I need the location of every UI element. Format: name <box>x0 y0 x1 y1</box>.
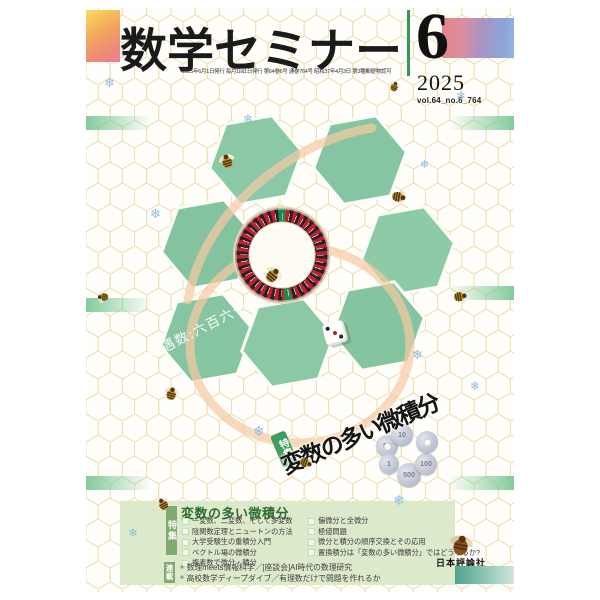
masthead-gradient-right <box>442 18 514 58</box>
bullet-square-icon <box>308 528 315 535</box>
contents-item-label: 極値問題 <box>318 527 347 537</box>
bullet-square-icon: ■ <box>180 575 184 581</box>
serial-item: ■高校数学ディープダイブ／有理数だけで問題を作れるか <box>180 573 381 584</box>
coin-1-icon: 1 <box>379 454 399 474</box>
bullet-square-icon <box>182 539 189 546</box>
contents-item: 極値問題 <box>308 527 347 537</box>
snowflake-icon: ❄ <box>104 76 115 89</box>
coin-100-icon: 100 <box>415 453 437 475</box>
contents-item: 陰関数定理とニュートンの方法 <box>182 527 293 537</box>
magazine-cover: 奇遇数:六百六十六 数学セミナー 2025年6月1日発行 毎月1回1日発行 第6… <box>86 8 514 592</box>
snowflake-icon: ❄ <box>243 113 253 125</box>
bullet-square-icon: ■ <box>180 565 184 571</box>
contents-box: 特集 変数の多い微積分 一変数、二変数、そして多変数 陰関数定理とニュートンの方… <box>120 501 455 585</box>
contents-item-label: 一変数、二変数、そして多変数 <box>192 516 292 526</box>
bullet-square-icon <box>308 549 315 556</box>
snowflake-icon: ❄ <box>150 207 161 220</box>
roulette-wheel-icon <box>235 208 329 302</box>
coin-5-icon: 5 <box>416 431 438 453</box>
contents-item: 一変数、二変数、そして多変数 <box>182 516 292 526</box>
contents-item-label: 偏微分と全微分 <box>318 516 368 526</box>
publication-info: 2025年6月1日発行 毎月1回1日発行 第64巻6号 通巻764号 昭和37年… <box>182 67 412 75</box>
dice-pip <box>339 334 344 339</box>
bee-icon <box>96 290 110 304</box>
teal-accent-strip <box>455 566 514 584</box>
serial-label-badge: 連載 <box>164 562 175 583</box>
snowflake-icon: ❄ <box>470 380 480 392</box>
snowflake-icon: ❄ <box>393 493 405 507</box>
contents-item: ベクトル場の微積分 <box>182 548 257 558</box>
masthead-divider-line <box>407 10 410 76</box>
volume-number: vol.64_no.6_764 <box>417 96 481 105</box>
dice-pip <box>333 331 338 336</box>
page-background: 奇遇数:六百六十六 数学セミナー 2025年6月1日発行 毎月1回1日発行 第6… <box>0 0 600 600</box>
issue-number: 6 <box>416 8 449 70</box>
bee-icon <box>389 187 410 208</box>
contents-item-label: 大学受験生の重積分入門 <box>192 537 271 547</box>
snowflake-icon: ❄ <box>412 348 423 361</box>
contents-item: 偏微分と全微分 <box>308 516 368 526</box>
contents-item-label: ベクトル場の微積分 <box>192 548 257 558</box>
bee-icon <box>451 287 471 307</box>
snowflake-icon: ❄ <box>420 160 429 171</box>
bullet-square-icon <box>308 518 315 525</box>
snowflake-icon: ❄ <box>253 424 265 438</box>
serial-item: ■数理meets情報科学／[座談会]AI時代の数理研究 <box>180 562 352 573</box>
bullet-square-icon <box>182 528 189 535</box>
dice-pip <box>325 326 330 331</box>
snowflake-icon: ❄ <box>456 90 466 102</box>
bullet-square-icon <box>182 518 189 525</box>
serial-item-label: 高校数学ディープダイブ／有理数だけで問題を作れるか <box>187 573 381 584</box>
masthead-gradient-left <box>86 10 120 62</box>
bullet-square-icon <box>182 549 189 556</box>
contents-item-label: 陰関数定理とニュートンの方法 <box>192 527 293 537</box>
feature-label-bar: 特集 <box>166 506 177 555</box>
bullet-square-icon <box>308 539 315 546</box>
contents-item-label: 微分と積分の順序交換とその応用 <box>318 537 426 547</box>
contents-item: 微分と積分の順序交換とその応用 <box>308 537 426 547</box>
serial-item-label: 数理meets情報科学／[座談会]AI時代の数理研究 <box>187 562 352 573</box>
snowflake-icon: ❄ <box>128 527 138 539</box>
contents-item: 大学受験生の重積分入門 <box>182 537 271 547</box>
